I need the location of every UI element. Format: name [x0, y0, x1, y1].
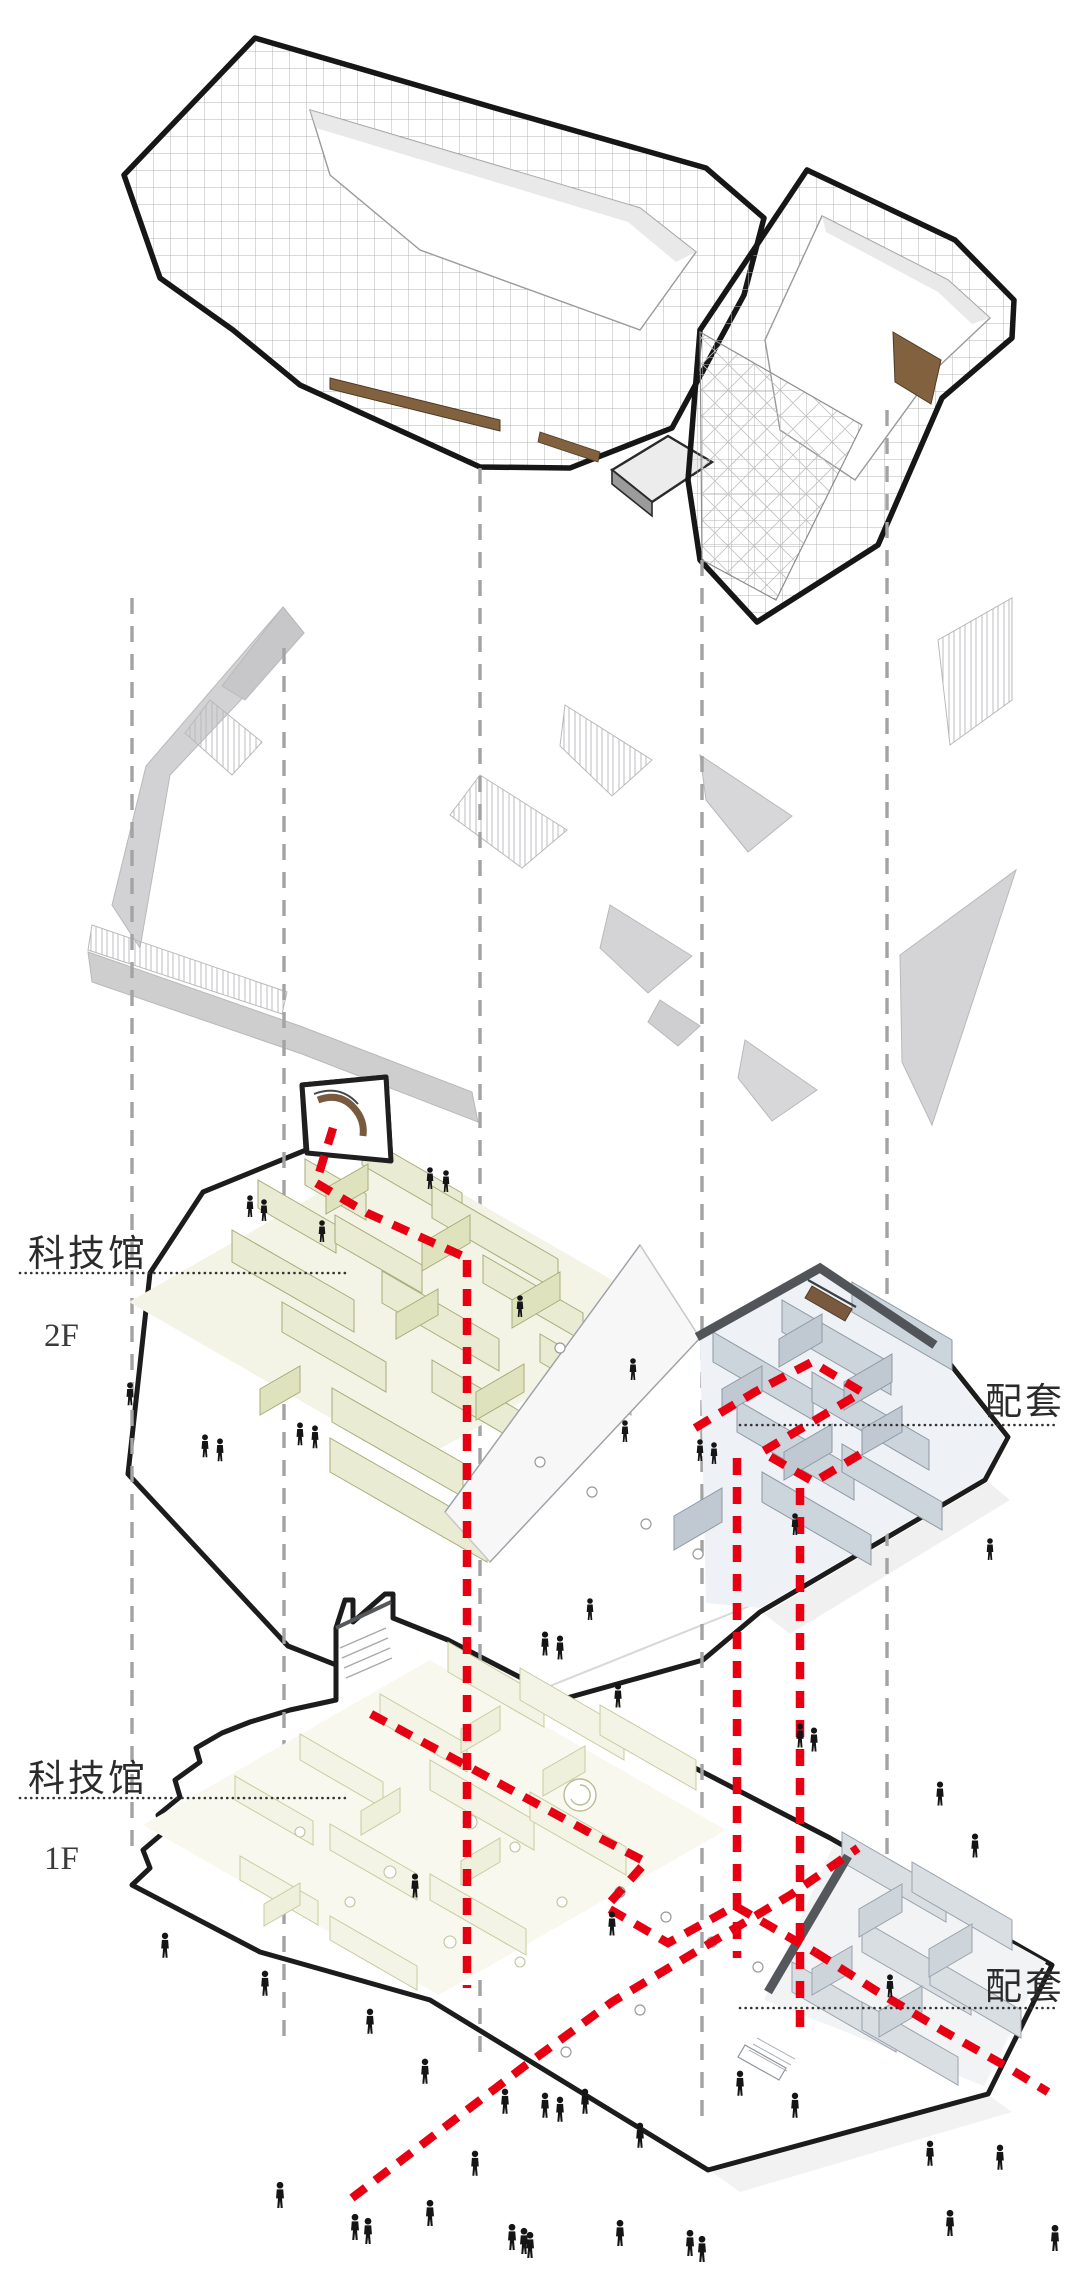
label-annex-1f: 配套 [985, 1968, 1065, 2005]
spiral-stair-1f [564, 1779, 596, 1811]
label-level-1f: 1F [44, 1843, 79, 1876]
diagram-canvas [0, 0, 1080, 2271]
facade-fragments-layer [88, 598, 1016, 1125]
entry-stair-nub-2f [302, 1077, 391, 1161]
label-museum-2f: 科技馆 [28, 1235, 148, 1272]
annex-zone-2f [674, 1268, 1005, 1608]
label-annex-2f: 配套 [985, 1383, 1065, 1420]
label-museum-1f: 科技馆 [28, 1760, 148, 1797]
label-level-2f: 2F [44, 1320, 79, 1353]
roof-massing-layer [124, 38, 1014, 622]
exploded-axonometric-diagram: 科技馆 2F 配套 科技馆 1F 配套 [0, 0, 1080, 2271]
